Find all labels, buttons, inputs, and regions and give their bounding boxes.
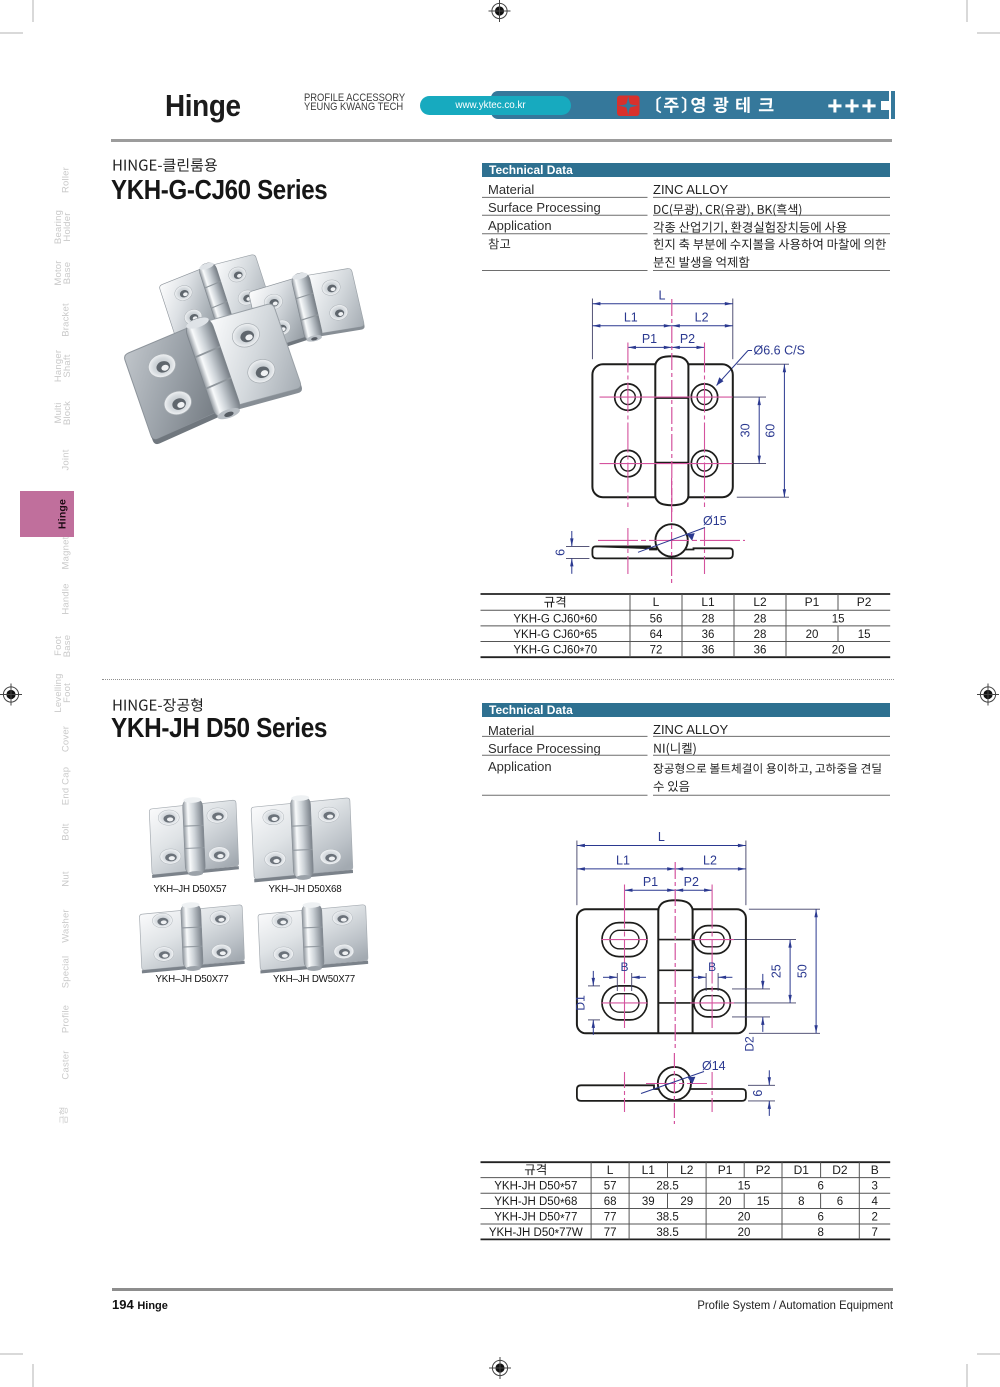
svg-text:P1: P1 bbox=[718, 1163, 733, 1177]
svg-text:6: 6 bbox=[817, 1181, 823, 1193]
svg-text:D1: D1 bbox=[573, 995, 587, 1011]
svg-text:P2: P2 bbox=[857, 595, 872, 609]
svg-text:20: 20 bbox=[738, 1227, 751, 1239]
svg-text:29: 29 bbox=[680, 1196, 693, 1208]
svg-text:P1: P1 bbox=[642, 332, 657, 346]
svg-text:L1: L1 bbox=[642, 1163, 656, 1177]
svg-text:6: 6 bbox=[837, 1196, 843, 1208]
svg-text:L2: L2 bbox=[680, 1163, 694, 1177]
svg-text:28.5: 28.5 bbox=[656, 1181, 678, 1193]
svg-text:77: 77 bbox=[604, 1211, 617, 1223]
svg-text:28: 28 bbox=[754, 613, 767, 625]
svg-text:39: 39 bbox=[642, 1196, 655, 1208]
svg-text:36: 36 bbox=[702, 645, 715, 657]
svg-text:B: B bbox=[871, 1163, 879, 1177]
svg-text:77: 77 bbox=[604, 1227, 617, 1239]
svg-text:72: 72 bbox=[650, 645, 663, 657]
svg-text:20: 20 bbox=[719, 1196, 732, 1208]
svg-text:20: 20 bbox=[806, 629, 819, 641]
svg-text:15: 15 bbox=[757, 1196, 770, 1208]
svg-text:D2: D2 bbox=[742, 1036, 756, 1052]
svg-text:20: 20 bbox=[832, 645, 845, 657]
svg-text:38.5: 38.5 bbox=[656, 1211, 678, 1223]
svg-text:L1: L1 bbox=[624, 311, 638, 325]
svg-text:8: 8 bbox=[817, 1227, 823, 1239]
svg-text:P2: P2 bbox=[684, 875, 699, 889]
svg-text:15: 15 bbox=[858, 629, 871, 641]
svg-text:20: 20 bbox=[738, 1211, 751, 1223]
svg-text:64: 64 bbox=[650, 629, 663, 641]
svg-text:L1: L1 bbox=[616, 854, 630, 868]
svg-text:L2: L2 bbox=[753, 595, 767, 609]
svg-text:Ø15: Ø15 bbox=[703, 514, 727, 528]
svg-text:36: 36 bbox=[702, 629, 715, 641]
svg-text:15: 15 bbox=[832, 613, 845, 625]
svg-text:L: L bbox=[607, 1163, 614, 1177]
svg-text:6: 6 bbox=[817, 1211, 823, 1223]
svg-text:D1: D1 bbox=[794, 1163, 810, 1177]
svg-text:YKH-JH D50*​77W: YKH-JH D50*​77W bbox=[489, 1227, 583, 1241]
svg-text:L: L bbox=[653, 595, 660, 609]
svg-text:P1: P1 bbox=[643, 875, 658, 889]
svg-text:30: 30 bbox=[739, 423, 753, 437]
svg-text:15: 15 bbox=[738, 1181, 751, 1193]
svg-text:28: 28 bbox=[754, 629, 767, 641]
svg-text:50: 50 bbox=[795, 964, 809, 978]
svg-text:YKH-JH D50*​77: YKH-JH D50*​77 bbox=[494, 1211, 577, 1225]
svg-text:YKH-G CJ60*​70: YKH-G CJ60*​70 bbox=[513, 645, 597, 659]
svg-text:L2: L2 bbox=[695, 311, 709, 325]
svg-text:Ø6.6 C/S: Ø6.6 C/S bbox=[754, 344, 805, 358]
svg-text:36: 36 bbox=[754, 645, 767, 657]
svg-text:L1: L1 bbox=[701, 595, 715, 609]
svg-text:57: 57 bbox=[604, 1181, 617, 1193]
svg-text:D2: D2 bbox=[832, 1163, 848, 1177]
svg-text:Ø14: Ø14 bbox=[702, 1059, 726, 1073]
svg-text:56: 56 bbox=[650, 613, 663, 625]
svg-text:L2: L2 bbox=[703, 854, 717, 868]
svg-text:25: 25 bbox=[770, 964, 784, 978]
svg-text:8: 8 bbox=[798, 1196, 804, 1208]
svg-text:4: 4 bbox=[872, 1196, 879, 1208]
svg-text:YKH-G CJ60*​65: YKH-G CJ60*​65 bbox=[513, 629, 597, 643]
svg-text:B: B bbox=[708, 960, 716, 974]
svg-text:B: B bbox=[620, 960, 628, 974]
svg-text:38.5: 38.5 bbox=[656, 1227, 678, 1239]
svg-text:7: 7 bbox=[872, 1227, 878, 1239]
svg-text:YKH-JH D50*​68: YKH-JH D50*​68 bbox=[494, 1196, 577, 1210]
svg-text:6: 6 bbox=[554, 549, 568, 556]
svg-text:P2: P2 bbox=[756, 1163, 771, 1177]
svg-text:60: 60 bbox=[764, 424, 778, 438]
svg-text:L: L bbox=[658, 830, 665, 844]
svg-text:68: 68 bbox=[604, 1196, 617, 1208]
svg-text:YKH-G CJ60*​60: YKH-G CJ60*​60 bbox=[513, 613, 597, 627]
svg-text:6: 6 bbox=[751, 1090, 765, 1097]
svg-text:2: 2 bbox=[872, 1211, 878, 1223]
svg-text:P1: P1 bbox=[805, 595, 820, 609]
svg-text:L: L bbox=[659, 289, 666, 303]
svg-text:P2: P2 bbox=[680, 332, 695, 346]
svg-text:YKH-JH D50*​57: YKH-JH D50*​57 bbox=[494, 1181, 577, 1195]
svg-text:28: 28 bbox=[702, 613, 715, 625]
svg-text:3: 3 bbox=[872, 1181, 878, 1193]
